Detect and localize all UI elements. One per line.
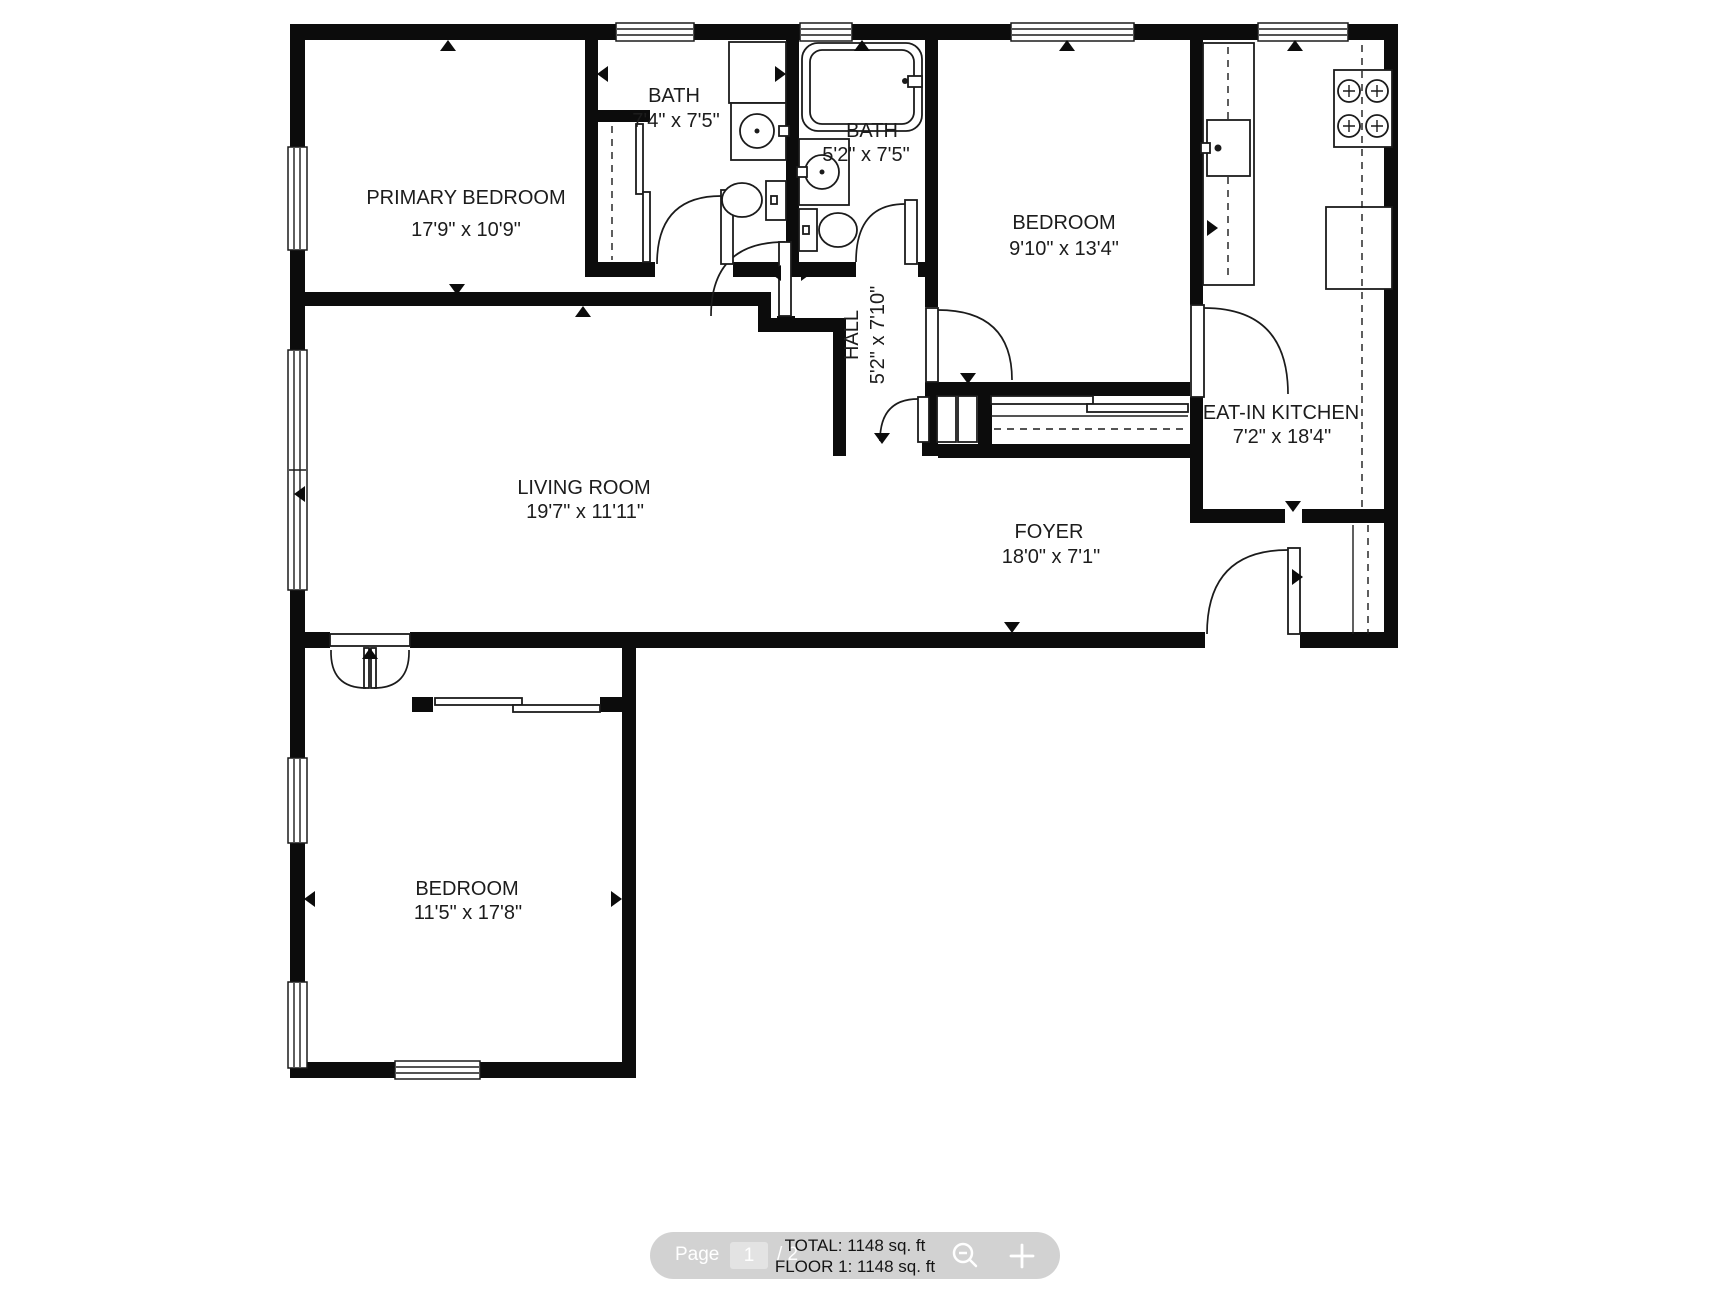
room-dims-bath2: 5'2" x 7'5" [822, 144, 909, 166]
window [800, 23, 852, 41]
sink-icon [731, 103, 789, 160]
kitchen-cabinet [1326, 207, 1392, 289]
room-label-primary-bedroom: PRIMARY BEDROOM [366, 187, 565, 209]
bath2-door [856, 200, 917, 264]
zoom-in-button[interactable] [1007, 1241, 1037, 1271]
foyer-closet [991, 396, 1188, 429]
room-label-hall: HALL [841, 310, 863, 360]
window [288, 758, 307, 843]
foyer-bifold-closet [937, 396, 977, 442]
page-toolbar: Page / 2 TOTAL: 1148 sq. ft FLOOR 1: 114… [650, 1232, 1060, 1279]
toilet-icon [722, 181, 786, 220]
window [288, 350, 307, 590]
window [616, 23, 694, 41]
stove-icon [1334, 70, 1392, 147]
entry-closet [1353, 525, 1368, 634]
plus-icon [1011, 1245, 1033, 1267]
floor-plan-viewer: PRIMARY BEDROOM 17'9" x 10'9" BATH 7'4" … [0, 0, 1714, 1290]
room-dims-hall: 5'2" x 7'10" [867, 286, 889, 385]
bedroom-door [926, 308, 1012, 382]
room-label-living-room: LIVING ROOM [517, 477, 650, 499]
room-dims-bath1: 7'4" x 7'5" [632, 110, 719, 132]
total-sqft: TOTAL: 1148 sq. ft [748, 1235, 962, 1256]
room-dims-bedroom-top: 9'10" x 13'4" [1009, 238, 1119, 260]
toilet-icon [799, 209, 857, 251]
window [288, 982, 307, 1068]
floor-sqft: FLOOR 1: 1148 sq. ft [748, 1256, 962, 1277]
window [288, 147, 307, 250]
french-doors [330, 634, 410, 688]
zoom-out-button[interactable] [950, 1241, 980, 1271]
window [395, 1061, 480, 1079]
room-dims-foyer: 18'0" x 7'1" [1002, 546, 1101, 568]
room-label-kitchen: EAT-IN KITCHEN [1203, 402, 1359, 424]
entry-door [1207, 548, 1300, 634]
room-dims-bedroom-bottom: 11'5" x 17'8" [414, 902, 522, 924]
window [1011, 23, 1134, 41]
room-label-bath2: BATH [846, 120, 898, 142]
room-dims-kitchen: 7'2" x 18'4" [1233, 426, 1332, 448]
window [1258, 23, 1348, 41]
room-label-foyer: FOYER [1015, 521, 1084, 543]
page-label: Page [675, 1244, 719, 1266]
primary-closet [612, 124, 650, 262]
room-label-bedroom-top: BEDROOM [1012, 212, 1115, 234]
magnifier-minus-icon [954, 1244, 976, 1266]
area-summary: TOTAL: 1148 sq. ft FLOOR 1: 1148 sq. ft [748, 1235, 962, 1277]
bathtub-icon [802, 43, 922, 131]
room-dims-primary-bedroom: 17'9" x 10'9" [411, 219, 521, 241]
floor-plan: PRIMARY BEDROOM 17'9" x 10'9" BATH 7'4" … [0, 0, 1714, 1290]
kitchen-sink-icon [1201, 120, 1250, 176]
room-label-bath1: BATH [648, 85, 700, 107]
kitchen-door [1191, 305, 1288, 397]
room-dims-living-room: 19'7" x 11'11" [526, 501, 644, 523]
bedroom-closet [435, 698, 600, 712]
room-label-bedroom-bottom: BEDROOM [415, 878, 518, 900]
